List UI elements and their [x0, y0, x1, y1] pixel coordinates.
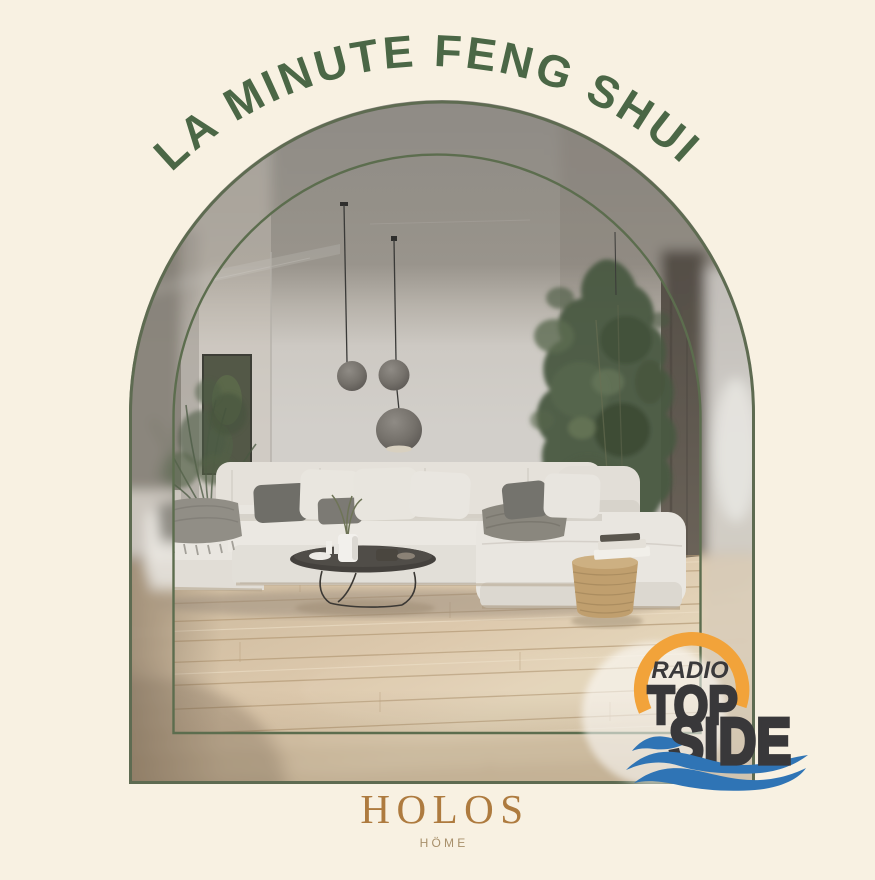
svg-text:DE: DE: [719, 705, 792, 778]
svg-text:HÖME: HÖME: [420, 836, 469, 850]
svg-text:HOLOS: HOLOS: [360, 786, 529, 832]
